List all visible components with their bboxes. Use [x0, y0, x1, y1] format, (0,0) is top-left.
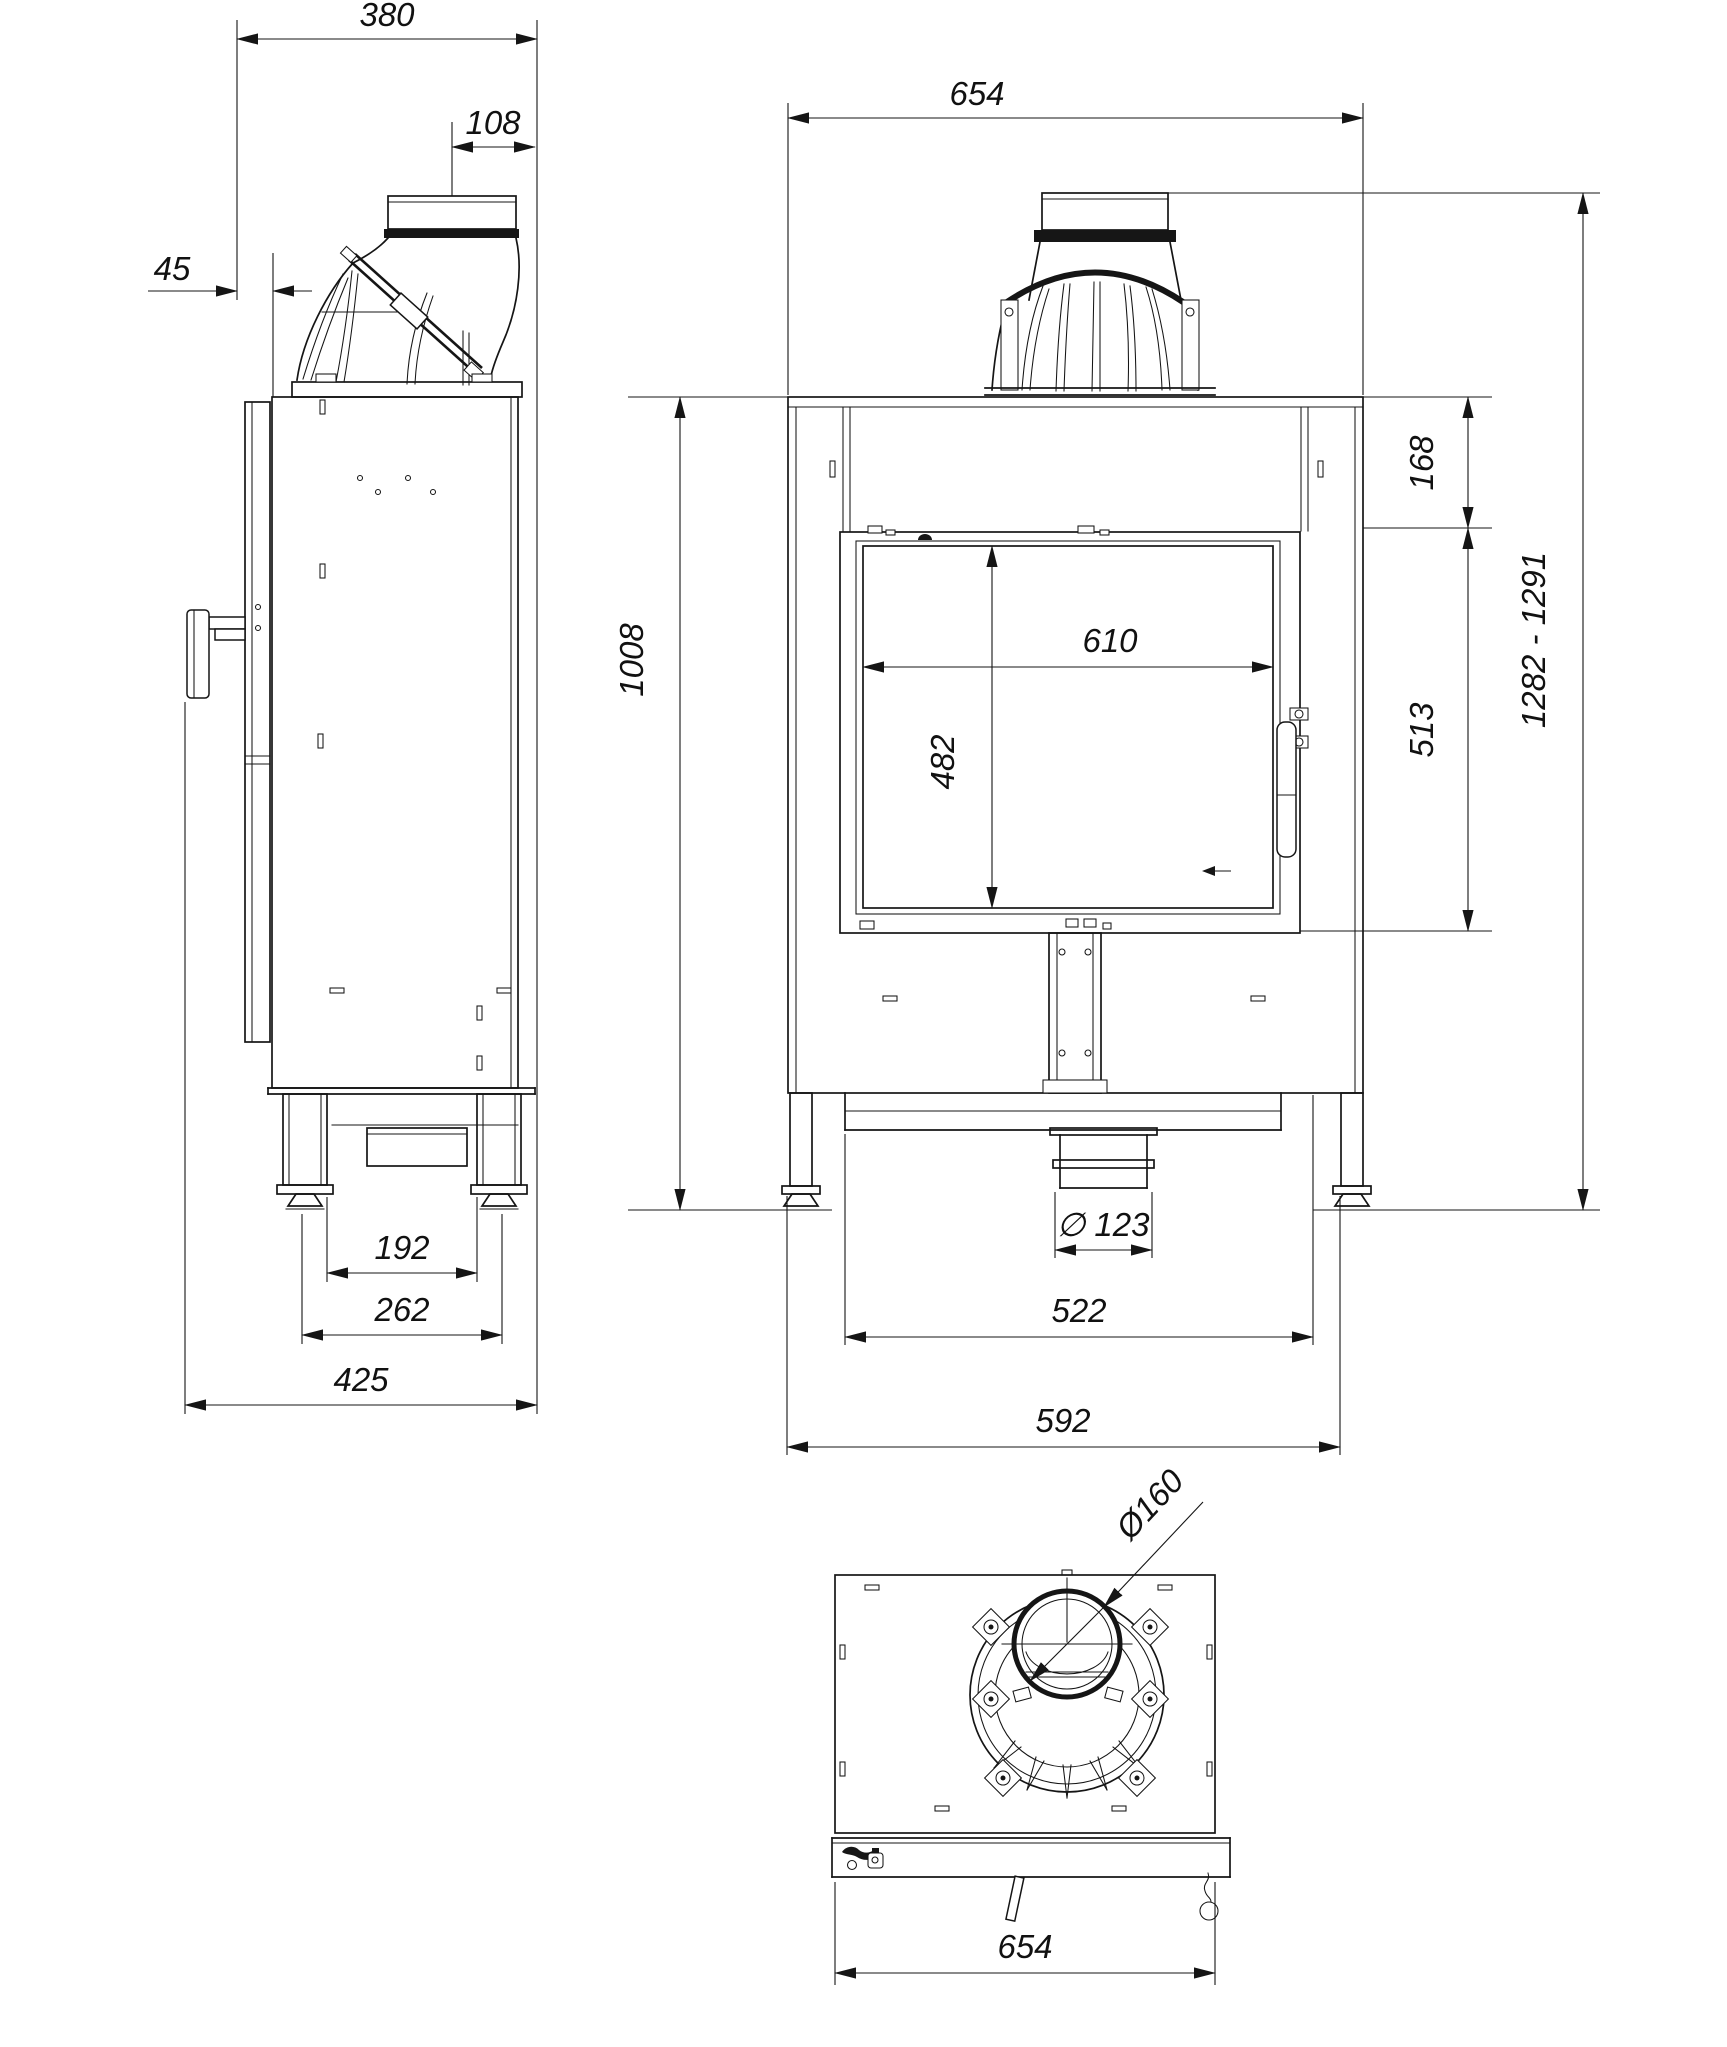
- dim-label-total-depth: 425: [333, 1361, 389, 1398]
- lock-icon: [868, 1848, 883, 1868]
- side-dimensions: 380 108 45 192 262 425: [148, 0, 537, 1414]
- door-lever: [1006, 1876, 1024, 1921]
- front-door-handle: [1277, 708, 1308, 857]
- bottom-dimensions: 654: [835, 1882, 1215, 1985]
- dim-label-outlet-diameter: ∅ 123: [1057, 1206, 1151, 1243]
- front-base: [782, 933, 1371, 1206]
- technical-drawing: 380 108 45 192 262 425: [0, 0, 1727, 2047]
- dim-label-base-inner: 522: [1051, 1292, 1106, 1329]
- bottom-view: Ø160: [832, 1462, 1230, 1985]
- front-dome: [985, 273, 1215, 396]
- dim-label-leg-span: 262: [373, 1291, 429, 1328]
- dim-label-side-depth: 380: [359, 0, 415, 33]
- drawing-sheet: 380 108 45 192 262 425: [0, 0, 1727, 2047]
- dim-label-top-band: 168: [1403, 435, 1440, 491]
- dim-label-body-height: 1008: [613, 623, 650, 697]
- side-flue-collar: [384, 196, 519, 238]
- front-door: [840, 526, 1308, 933]
- dim-label-front-gap: 45: [154, 250, 191, 287]
- dim-label-flue-offset: 108: [465, 104, 521, 141]
- dim-label-glass-width: 610: [1082, 622, 1138, 659]
- side-door-handle: [187, 610, 245, 698]
- dim-label-door-height: 513: [1403, 702, 1440, 758]
- side-legs: [277, 1094, 527, 1209]
- front-flue-collar: [1029, 193, 1181, 300]
- dim-label-bottom-width: 654: [997, 1928, 1052, 1965]
- front-dimensions: 654 1282 - 1291 1008 168 513 610 482 ∅: [613, 75, 1600, 1455]
- dim-label-total-height: 1282 - 1291: [1515, 552, 1552, 728]
- dim-label-front-width: 654: [949, 75, 1004, 112]
- bottom-fascia: [832, 1838, 1230, 1921]
- dim-label-flue-diameter: Ø160: [1108, 1462, 1191, 1547]
- dim-label-glass-height: 482: [924, 734, 961, 789]
- bottom-flue-flange: Ø160: [970, 1462, 1203, 1798]
- door-opening-arrow-icon: [1202, 866, 1231, 876]
- side-view: 380 108 45 192 262 425: [148, 0, 537, 1414]
- front-view: 654 1282 - 1291 1008 168 513 610 482 ∅: [613, 75, 1600, 1455]
- side-elbow-duct: [292, 238, 522, 397]
- dim-label-leg-inner: 192: [374, 1229, 429, 1266]
- dim-label-base-width: 592: [1035, 1402, 1090, 1439]
- side-body: [187, 397, 535, 1094]
